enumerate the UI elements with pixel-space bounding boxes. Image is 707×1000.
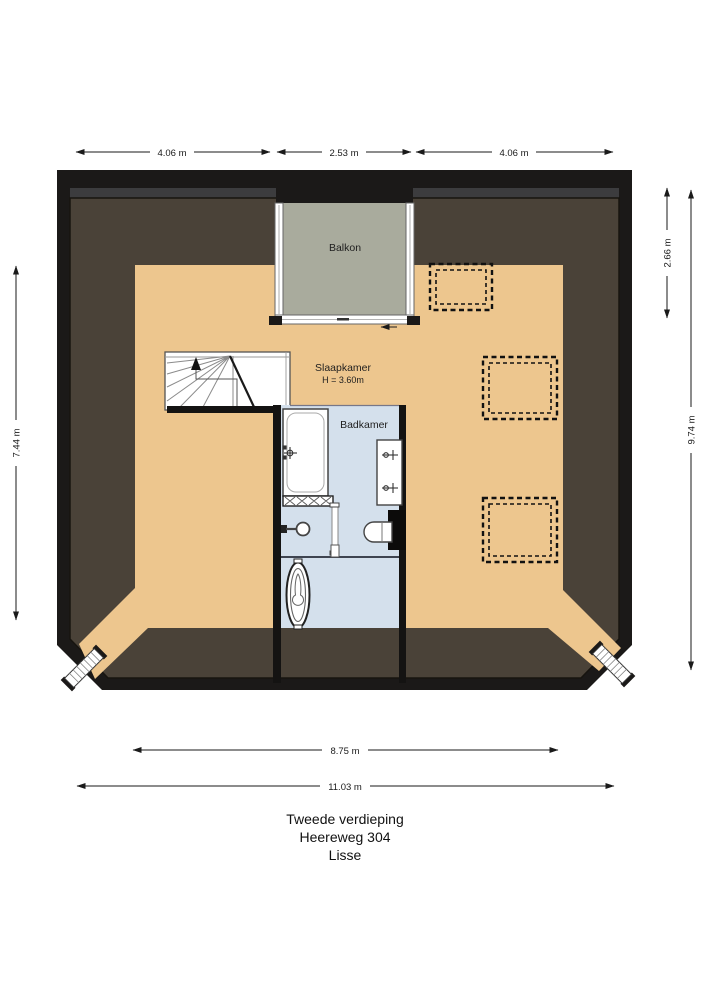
bedroom-label: Slaapkamer [315, 362, 372, 374]
dim-bottom-inner: 8.75 m [133, 744, 558, 757]
balcony-corner-block-left [269, 316, 282, 325]
balcony: Balkon [269, 203, 420, 327]
balcony-door-handle [337, 318, 349, 321]
balcony-label: Balkon [329, 242, 361, 254]
dim-top-left: 4.06 m [76, 146, 270, 159]
svg-text:4.06 m: 4.06 m [499, 148, 528, 159]
svg-text:8.75 m: 8.75 m [330, 746, 359, 757]
svg-text:9.74 m: 9.74 m [687, 415, 698, 444]
svg-text:11.03 m: 11.03 m [328, 782, 362, 793]
staircase [165, 352, 290, 413]
dim-right-full: 9.74 m [685, 190, 698, 670]
title-street: Heereweg 304 [299, 829, 390, 845]
svg-text:2.66 m: 2.66 m [663, 238, 674, 267]
toilet [287, 559, 310, 629]
svg-text:7.44 m: 7.44 m [12, 428, 23, 457]
svg-text:2.53 m: 2.53 m [329, 148, 358, 159]
bathroom-wall-left [273, 405, 281, 683]
vanity [377, 440, 402, 505]
bathroom-label: Badkamer [340, 419, 388, 431]
dim-left-side: 7.44 m [10, 266, 23, 620]
balcony-wall-bump [276, 178, 413, 204]
dim-right-upper: 2.66 m [661, 188, 674, 318]
title-city: Lisse [329, 847, 362, 863]
dim-top-center: 2.53 m [277, 146, 411, 159]
floor-plan-canvas: Balkon [0, 0, 707, 1000]
partition-door-post [331, 545, 339, 557]
balcony-corner-block-right [407, 316, 420, 325]
radiator [283, 496, 333, 506]
shower-head-icon [297, 523, 310, 536]
title-floor: Tweede verdieping [286, 811, 404, 827]
bedroom-height-label: H = 3.60m [322, 375, 364, 385]
dim-bottom-full: 11.03 m [77, 780, 614, 793]
under-stair-wall [167, 406, 290, 413]
bedroom-labels: Slaapkamer H = 3.60m [315, 362, 372, 385]
balcony-floor [283, 203, 406, 317]
svg-text:4.06 m: 4.06 m [157, 148, 186, 159]
floor-plan-page: Balkon [0, 0, 707, 1000]
bathtub [283, 409, 328, 496]
plan-title: Tweede verdieping Heereweg 304 Lisse [286, 811, 404, 863]
dim-top-right: 4.06 m [416, 146, 613, 159]
